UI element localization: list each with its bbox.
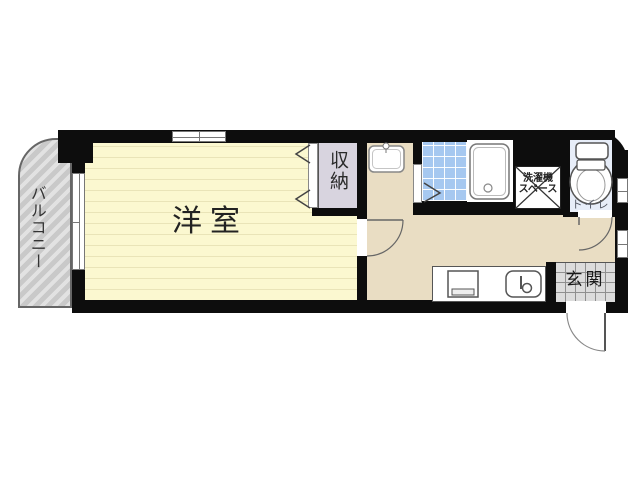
stove-icon — [448, 271, 478, 297]
washbasin-icon — [369, 143, 404, 172]
kitchen-sink-icon — [506, 271, 541, 297]
entrance-label: 玄関 — [556, 271, 615, 289]
closet-label: 収納 — [327, 150, 347, 192]
entrance-door-icon — [567, 313, 605, 351]
bathtub-icon — [470, 144, 509, 199]
toilet-icon — [570, 143, 612, 204]
western-room-label: 洋室 — [155, 206, 265, 238]
balcony-label: バルコニー — [27, 185, 44, 270]
toilet-label: トイレ — [570, 200, 612, 212]
bathroom-folding-door-icon — [424, 183, 440, 202]
toilet-door-arc-icon — [579, 217, 612, 250]
floorplan: 洋室 収納 バルコニー 洗濯機 スペース トイレ 玄関 — [0, 0, 640, 480]
washing-machine-space-label-line2: スペース — [514, 185, 562, 196]
washing-machine-space-label: 洗濯機 スペース — [514, 174, 562, 195]
room-door-arc-icon — [367, 220, 403, 256]
fixtures-overlay — [0, 0, 640, 480]
washing-machine-space-label-line1: 洗濯機 — [514, 174, 562, 185]
closet-folding-door-icon — [296, 145, 310, 208]
